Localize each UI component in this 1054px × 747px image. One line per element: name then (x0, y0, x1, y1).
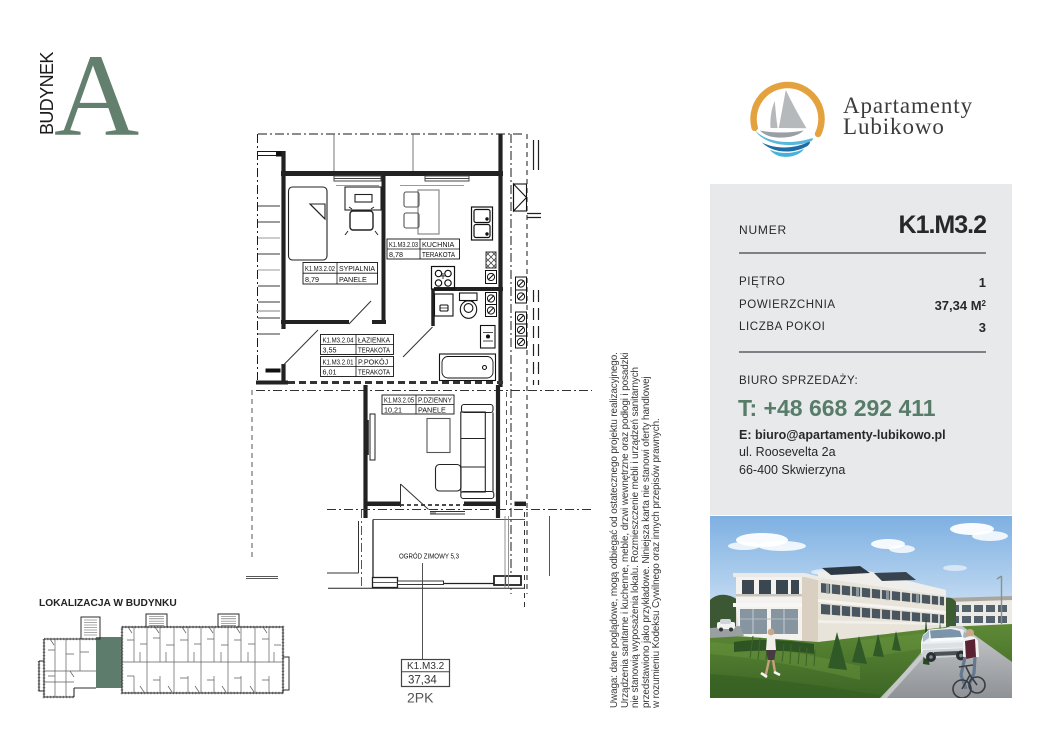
svg-text:6,01: 6,01 (323, 368, 337, 377)
svg-text:PANELE: PANELE (418, 406, 446, 415)
svg-text:P.DZIENNY: P.DZIENNY (418, 396, 452, 405)
svg-text:K1.M3.2.01: K1.M3.2.01 (323, 358, 354, 367)
svg-text:KUCHNIA: KUCHNIA (422, 240, 455, 249)
svg-text:K1.M3.2.04: K1.M3.2.04 (323, 336, 354, 345)
svg-text:37,34: 37,34 (408, 675, 437, 687)
svg-text:K1.M3.2.05: K1.M3.2.05 (384, 396, 414, 405)
svg-text:OGRÓD ZIMOWY 5,3: OGRÓD ZIMOWY 5,3 (399, 552, 459, 561)
svg-text:SYPIALNIA: SYPIALNIA (339, 264, 375, 273)
svg-text:ŁAZIENKA: ŁAZIENKA (358, 336, 390, 345)
svg-text:K1.M3.2.03: K1.M3.2.03 (389, 240, 418, 249)
svg-text:TERAKOTA: TERAKOTA (358, 346, 390, 355)
svg-text:3,55: 3,55 (323, 346, 337, 355)
svg-text:TERAKOTA: TERAKOTA (422, 250, 455, 259)
svg-text:8,79: 8,79 (305, 275, 319, 284)
svg-text:2PK: 2PK (407, 690, 434, 706)
svg-text:K1.M3.2.02: K1.M3.2.02 (305, 264, 335, 273)
svg-text:P.POKÓJ: P.POKÓJ (358, 358, 389, 367)
svg-text:8,78: 8,78 (389, 250, 403, 259)
svg-text:TERAKOTA: TERAKOTA (358, 368, 390, 377)
svg-text:10,21: 10,21 (384, 406, 402, 415)
svg-text:K1.M3.2: K1.M3.2 (407, 661, 445, 672)
svg-text:PANELE: PANELE (339, 275, 367, 284)
